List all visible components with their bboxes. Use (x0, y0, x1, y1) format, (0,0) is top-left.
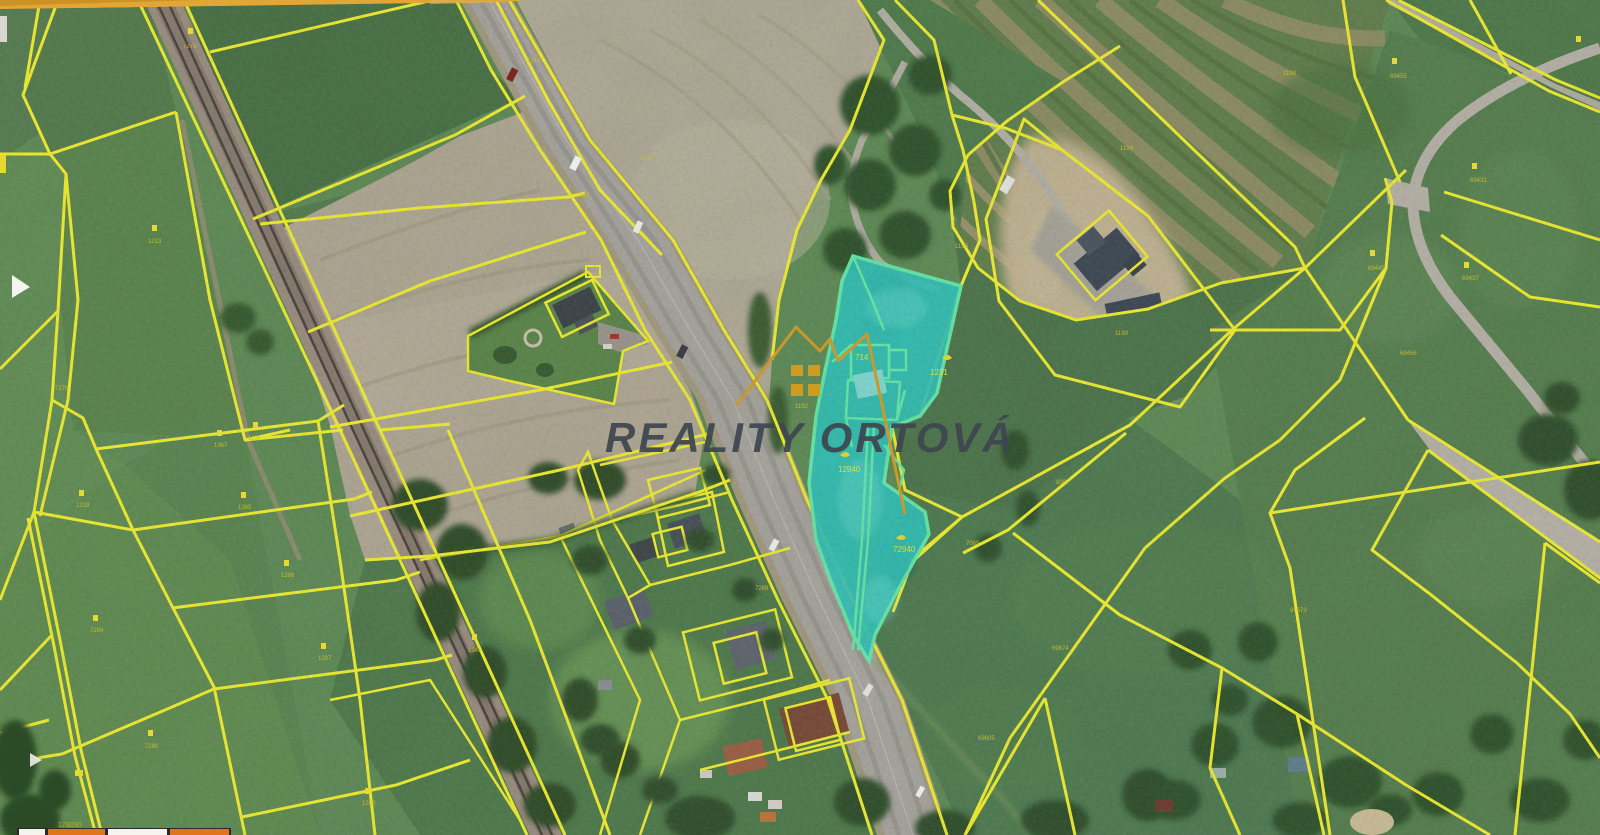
svg-text:1288: 1288 (362, 801, 376, 807)
svg-text:1199: 1199 (1120, 146, 1134, 152)
svg-text:7069: 7069 (966, 541, 980, 547)
svg-text:69674: 69674 (1052, 646, 1069, 652)
svg-text:1198: 1198 (955, 244, 969, 250)
svg-text:8907: 8907 (1056, 480, 1070, 486)
svg-text:1219: 1219 (76, 503, 90, 509)
svg-text:69445: 69445 (1368, 266, 1385, 272)
svg-text:69456: 69456 (1400, 351, 1417, 357)
svg-text:REALITY ORTOVÁ: REALITY ORTOVÁ (605, 414, 1016, 461)
svg-text:1312: 1312 (527, 58, 541, 64)
svg-text:7284: 7284 (90, 628, 104, 634)
svg-text:1192: 1192 (795, 404, 809, 410)
svg-text:1341: 1341 (468, 648, 482, 654)
svg-text:1199: 1199 (1115, 331, 1129, 337)
svg-text:1287: 1287 (318, 656, 332, 662)
svg-text:69605: 69605 (978, 736, 995, 742)
svg-text:69455: 69455 (1390, 74, 1407, 80)
svg-text:1198: 1198 (1283, 71, 1297, 77)
svg-text:1225: 1225 (248, 436, 262, 442)
svg-text:69673: 69673 (1290, 608, 1307, 614)
svg-text:1367: 1367 (214, 443, 228, 449)
svg-text:1285: 1285 (238, 505, 252, 511)
svg-text:7280: 7280 (145, 744, 159, 750)
svg-text:69431: 69431 (1470, 178, 1487, 184)
svg-text:1313: 1313 (576, 193, 590, 199)
svg-text:1286: 1286 (281, 573, 295, 579)
svg-text:1216: 1216 (640, 156, 654, 162)
svg-text:1213: 1213 (148, 239, 162, 245)
svg-text:7278: 7278 (55, 386, 69, 392)
svg-text:69437: 69437 (1462, 276, 1479, 282)
svg-text:7269: 7269 (755, 586, 769, 592)
svg-text:173090: 173090 (58, 822, 81, 829)
svg-text:7273: 7273 (183, 44, 197, 50)
